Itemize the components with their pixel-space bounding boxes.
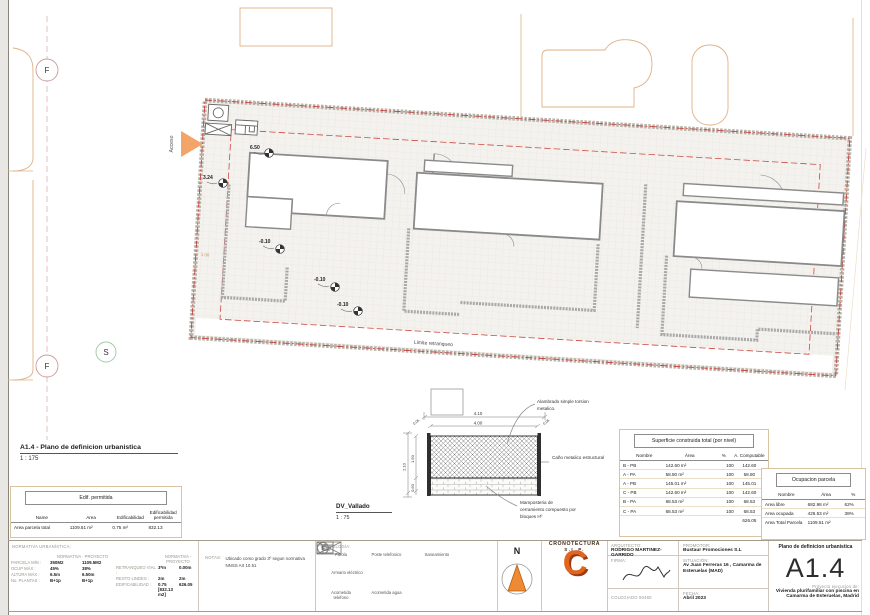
normativa-right-grid: NORMATIVA - PROYECTO RETRANQUEO VIAL :3*… — [116, 554, 196, 597]
cell: 142.60 m² — [666, 463, 714, 468]
cell: 1109.51 m² — [70, 525, 113, 530]
cell: Area libre — [765, 502, 808, 507]
cell — [845, 520, 862, 525]
symbol-acometida-agua: Acometida agua — [362, 589, 410, 595]
dim-total-w: 4.10 — [474, 411, 483, 416]
cell: 832.13 — [148, 525, 178, 530]
normativa-section: NORMATIVA URBANÍSTICA: NORMATIVA - PROYE… — [8, 541, 198, 611]
edif-table-title: Edif. permitida — [25, 491, 167, 505]
normativa-left-grid: NORMATIVA - PROYECTO PARCELA MÍN :350M21… — [11, 554, 113, 583]
cell: 100 — [714, 490, 734, 495]
cell: 38% — [845, 511, 862, 516]
acometida-agua-icon — [316, 541, 334, 554]
cell: 100 — [714, 463, 734, 468]
callout-base: Mamposteria de cerramiento compuesto por… — [520, 500, 576, 521]
col-header: Edificabilidad — [112, 515, 148, 520]
cell: 100 — [714, 481, 734, 486]
cell: C - PA — [623, 509, 666, 514]
cell: 0.75 m² — [112, 525, 148, 530]
cell: 142.60 — [734, 463, 765, 468]
dim-side-r: 0.05 — [542, 418, 550, 425]
edif-permitida-table: Edif. permitida Name Area Edificabilidad… — [10, 486, 182, 538]
sheet-code: A1.4 — [769, 553, 862, 584]
dim-side-l: 0.05 — [412, 418, 420, 425]
node-f2-label: F — [45, 362, 50, 371]
col-header: A. Computable — [734, 453, 765, 458]
cell: Area parcela total — [14, 525, 70, 530]
plan-view-title: A1.4 - Plano de definicion urbanistica 1… — [20, 444, 220, 462]
ocupacion-table: Ocupacion parcela Nombre Área % Area lib… — [761, 468, 866, 540]
svg-text:-0.10: -0.10 — [337, 302, 349, 308]
notas-text: Ubicado como grado 3º segun normativa NN… — [225, 555, 309, 569]
cell: B - PA — [623, 499, 666, 504]
simbologia-title: SIMBOLOGÍA: — [316, 541, 497, 551]
col-header: % — [845, 492, 862, 497]
sheet-id-section: Plano de definicion urbanistica A1.4 Pro… — [768, 541, 862, 611]
cell: C - PB — [623, 490, 666, 495]
edif-table-header: Name Area Edificabilidad Edificabilidad … — [11, 508, 181, 523]
title-block: NORMATIVA URBANÍSTICA: NORMATIVA - PROYE… — [8, 540, 862, 612]
cell: Area Total Parcela — [765, 520, 808, 525]
logo-section: C C CRONOTECTURA S.L.P. — [541, 541, 607, 611]
col-header: % — [714, 453, 734, 458]
symbol-armario-electrico: Armario eléctrico — [324, 569, 370, 575]
col-header: Name — [14, 515, 70, 520]
vallado-scale: 1 : 75 — [336, 515, 406, 521]
table-row: C - PA68.53 m²10068.53 — [620, 507, 768, 516]
node-s-label: S — [103, 348, 108, 357]
vallado-title-text: DV_Vallado — [336, 503, 392, 513]
cell: A - PA — [623, 472, 666, 477]
cell: 100 — [714, 509, 734, 514]
signature-icon — [620, 562, 672, 586]
symbol-acometida-telefono: Acometida telefono — [324, 589, 358, 600]
node-markers: F F S — [36, 59, 116, 377]
superficie-table-title: Superficie construida total (por nivel) — [634, 434, 754, 448]
notas-section: NOTAS: Ubicado como grado 3º segun norma… — [198, 541, 315, 611]
superficie-table: Superficie construida total (por nivel) … — [619, 429, 769, 537]
col-header: Nombre — [623, 453, 666, 458]
ocupacion-table-title: Ocupacion parcela — [776, 473, 851, 487]
ocupacion-table-header: Nombre Área % — [762, 490, 865, 500]
callout-post: Caño metalico estructural — [552, 455, 610, 462]
cell: 58.80 m² — [666, 472, 714, 477]
north-section: N — [497, 541, 541, 611]
access-arrow: Acceso — [169, 131, 203, 157]
cell: 62% — [845, 502, 862, 507]
left-dim-label: 1.00 — [201, 252, 210, 258]
fence-mesh — [431, 436, 538, 478]
cell: 142.60 m² — [666, 490, 714, 495]
normativa-col-headers: NORMATIVA - PROYECTO — [158, 554, 198, 564]
vallado-detail: 4.10 4.00 0.05 0.05 2.10 1.50 0.60 — [402, 389, 551, 506]
plan-view-title-text: A1.4 - Plano de definicion urbanistica — [20, 444, 178, 454]
access-label: Acceso — [169, 135, 175, 152]
situacion-value: Av Juan Ferreras 16 , Camarma de Esterue… — [683, 563, 764, 576]
node-f1-label: F — [45, 66, 50, 75]
normativa-title: NORMATIVA URBANÍSTICA: — [8, 541, 198, 549]
col-header: Area — [70, 515, 113, 520]
cronotectura-logo-icon: C C — [542, 541, 608, 583]
north-arrow-icon: N — [498, 541, 536, 605]
normativa-col-headers: NORMATIVA - PROYECTO — [50, 554, 115, 559]
cell: 68.53 m² — [666, 509, 714, 514]
cell: A - PB — [623, 481, 666, 486]
simbologia-section: SIMBOLOGÍA: F Farola T Poste telefonico … — [315, 541, 497, 611]
table-row: B - PA68.53 m²10068.53 — [620, 498, 768, 507]
callout-mesh: Alambrado simple torsion metalico. — [537, 399, 601, 413]
arquitecto-section: ARQUITECTO: RODRIGO MARTINEZ-GARRIDO FIR… — [607, 541, 678, 611]
cell: 100 — [714, 472, 734, 477]
superficie-table-header: Nombre Área % A. Computable — [620, 451, 768, 461]
vallado-title: DV_Vallado 1 : 75 — [336, 503, 406, 521]
cell: 145.01 m² — [666, 481, 714, 486]
drawing-sheet: F F S Acceso — [0, 0, 870, 615]
table-row: A - PA58.80 m²10058.80 — [620, 470, 768, 479]
cell: Area ocupada — [765, 511, 808, 516]
cell: 68.53 m² — [666, 499, 714, 504]
table-row: B - PB142.60 m²100142.60 — [620, 461, 768, 470]
cell: 682.98 m² — [808, 502, 845, 507]
svg-text:6.50: 6.50 — [250, 145, 260, 151]
table-row: Area parcela total 1109.51 m² 0.75 m² 83… — [11, 523, 181, 531]
dim-mesh-h: 1.50 — [410, 454, 415, 463]
svg-text:3.24: 3.24 — [203, 175, 213, 181]
notas-label: NOTAS: — [205, 555, 221, 569]
colegiado-number: COLEGIADO 90460 — [611, 595, 675, 600]
dim-base-h: 0.60 — [410, 483, 415, 492]
col-header: Edificabilidad permitida — [148, 510, 178, 520]
table-row: C - PB142.60 m²100142.60 — [620, 489, 768, 498]
cell: B - PB — [623, 463, 666, 468]
col-header: Nombre — [765, 492, 808, 497]
svg-text:-0.10: -0.10 — [259, 239, 271, 245]
north-label: N — [514, 546, 521, 556]
promotor-name: Bustaur Promociones S.L — [683, 548, 764, 553]
cell: 100 — [714, 499, 734, 504]
sheet-plano-title: Plano de definicion urbanistica — [769, 541, 862, 553]
parcel-group: Limite retranqueo 1.00 — [191, 100, 850, 376]
col-header: Área — [666, 453, 714, 458]
promotor-section: PROMOTOR: Bustaur Promociones S.L SITUAC… — [678, 541, 768, 611]
table-row: Area libre682.98 m²62% — [762, 500, 865, 509]
fence-base — [431, 478, 538, 495]
table-total-row: 626.05 — [620, 516, 768, 524]
symbol-poste-telefonico: T Poste telefonico — [362, 551, 410, 557]
proyecto-line2: Camarma de Esteruelas, Madrid — [772, 594, 859, 599]
cell: 1109.51 m² — [808, 520, 845, 525]
table-row: Area ocupada426.53 m²38% — [762, 509, 865, 518]
dim-inner-w: 4.00 — [474, 421, 483, 426]
svg-text:C: C — [563, 544, 588, 582]
symbol-saneamiento: S Saneamiento — [415, 551, 459, 557]
table-row: Area Total Parcela1109.51 m² — [762, 518, 865, 526]
col-header: Área — [808, 492, 845, 497]
table-row: A - PB145.01 m²100145.01 — [620, 479, 768, 488]
fecha-value: Abril 2023 — [683, 596, 764, 601]
cell: 426.53 m² — [808, 511, 845, 516]
dim-total-h: 2.10 — [402, 462, 407, 471]
plan-view-scale: 1 : 175 — [20, 456, 220, 462]
svg-text:-0.10: -0.10 — [314, 277, 326, 283]
